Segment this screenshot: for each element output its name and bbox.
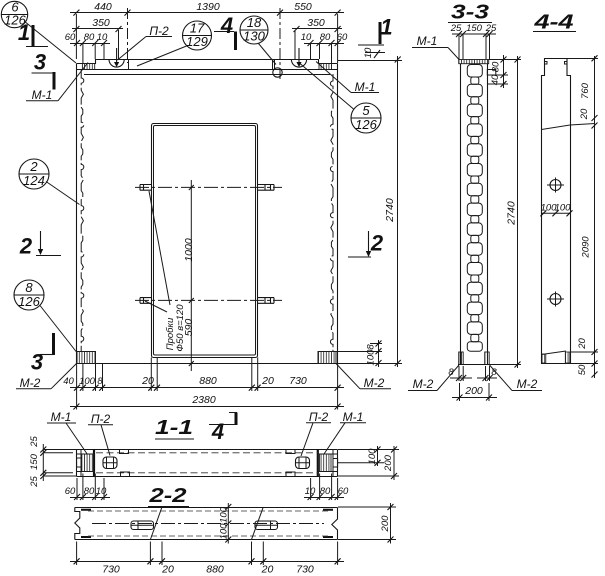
svg-text:1: 1 [18,20,30,45]
svg-text:80: 80 [320,32,331,43]
svg-text:2740: 2740 [506,201,518,226]
svg-text:8: 8 [366,344,377,350]
svg-text:20: 20 [579,108,590,120]
svg-text:126: 126 [18,294,40,309]
svg-text:4: 4 [220,13,233,38]
svg-text:20: 20 [261,564,274,576]
svg-text:10: 10 [305,486,316,497]
svg-text:80: 80 [84,32,95,43]
svg-text:100: 100 [367,448,378,465]
svg-text:200: 200 [464,385,483,397]
svg-text:5: 5 [362,103,370,118]
svg-text:10: 10 [363,47,374,58]
svg-text:4-4: 4-4 [533,12,573,34]
svg-text:2: 2 [370,231,384,256]
svg-text:3: 3 [31,350,43,375]
svg-text:М-1: М-1 [32,88,53,102]
svg-text:730: 730 [289,375,307,387]
svg-text:60: 60 [65,486,76,497]
svg-text:124: 124 [23,173,45,188]
svg-text:М-1: М-1 [355,80,376,94]
svg-text:М-1: М-1 [343,410,364,424]
svg-text:60: 60 [65,32,76,43]
svg-text:730: 730 [102,564,120,576]
svg-text:730: 730 [296,564,314,576]
svg-text:П-2: П-2 [91,412,111,426]
svg-text:50: 50 [577,364,588,375]
svg-text:126: 126 [355,117,377,132]
svg-text:150: 150 [29,453,40,470]
svg-text:Ф50 в=120: Ф50 в=120 [175,304,186,352]
svg-text:60: 60 [338,486,349,497]
svg-text:10: 10 [96,486,107,497]
svg-text:880: 880 [206,564,224,576]
svg-text:1390: 1390 [196,1,220,13]
svg-text:440: 440 [94,1,112,13]
svg-text:80: 80 [320,486,331,497]
svg-text:350: 350 [92,17,110,29]
svg-text:3: 3 [34,50,46,75]
svg-text:25: 25 [29,476,40,488]
svg-text:М-2: М-2 [20,376,41,390]
svg-text:100: 100 [366,349,377,366]
svg-text:2380: 2380 [191,394,216,406]
svg-text:20: 20 [141,375,154,387]
svg-text:200: 200 [383,454,394,472]
svg-text:2: 2 [29,159,38,174]
svg-text:40: 40 [490,74,501,85]
svg-text:200: 200 [380,515,391,533]
svg-text:М-2: М-2 [413,377,434,391]
svg-text:130: 130 [243,29,265,44]
svg-text:150: 150 [466,23,483,34]
svg-text:М-2: М-2 [364,376,385,390]
svg-text:25: 25 [450,23,462,34]
svg-text:М-1: М-1 [51,410,72,424]
svg-text:100: 100 [79,376,96,387]
svg-text:1-1: 1-1 [155,417,193,439]
svg-text:4: 4 [211,419,224,444]
svg-text:25: 25 [485,23,497,34]
svg-text:129: 129 [186,34,208,49]
svg-text:10: 10 [301,32,312,43]
svg-text:760: 760 [580,82,591,99]
svg-text:20: 20 [261,375,274,387]
svg-text:8: 8 [25,280,33,295]
svg-text:100: 100 [219,523,230,540]
svg-text:100: 100 [219,506,230,523]
svg-text:880: 880 [199,375,217,387]
svg-text:40: 40 [63,376,74,387]
svg-text:550: 550 [294,1,312,13]
svg-text:2-2: 2-2 [148,485,186,507]
svg-text:80: 80 [491,61,502,72]
svg-text:25: 25 [29,436,40,448]
svg-text:3-3: 3-3 [451,2,489,24]
svg-text:1000: 1000 [183,238,195,262]
svg-text:100: 100 [555,203,572,214]
svg-text:2090: 2090 [581,236,592,259]
svg-text:350: 350 [307,17,325,29]
svg-text:20: 20 [161,564,174,576]
svg-text:10: 10 [97,32,108,43]
svg-text:2: 2 [19,234,33,259]
svg-text:80: 80 [84,486,95,497]
svg-text:1: 1 [380,15,392,40]
svg-text:2740: 2740 [384,198,396,223]
svg-text:М-2: М-2 [517,377,538,391]
svg-text:20: 20 [577,338,588,350]
svg-text:60: 60 [337,32,348,43]
svg-text:М-1: М-1 [417,34,438,48]
svg-text:П-2: П-2 [309,410,329,424]
svg-text:П-2: П-2 [149,24,169,38]
